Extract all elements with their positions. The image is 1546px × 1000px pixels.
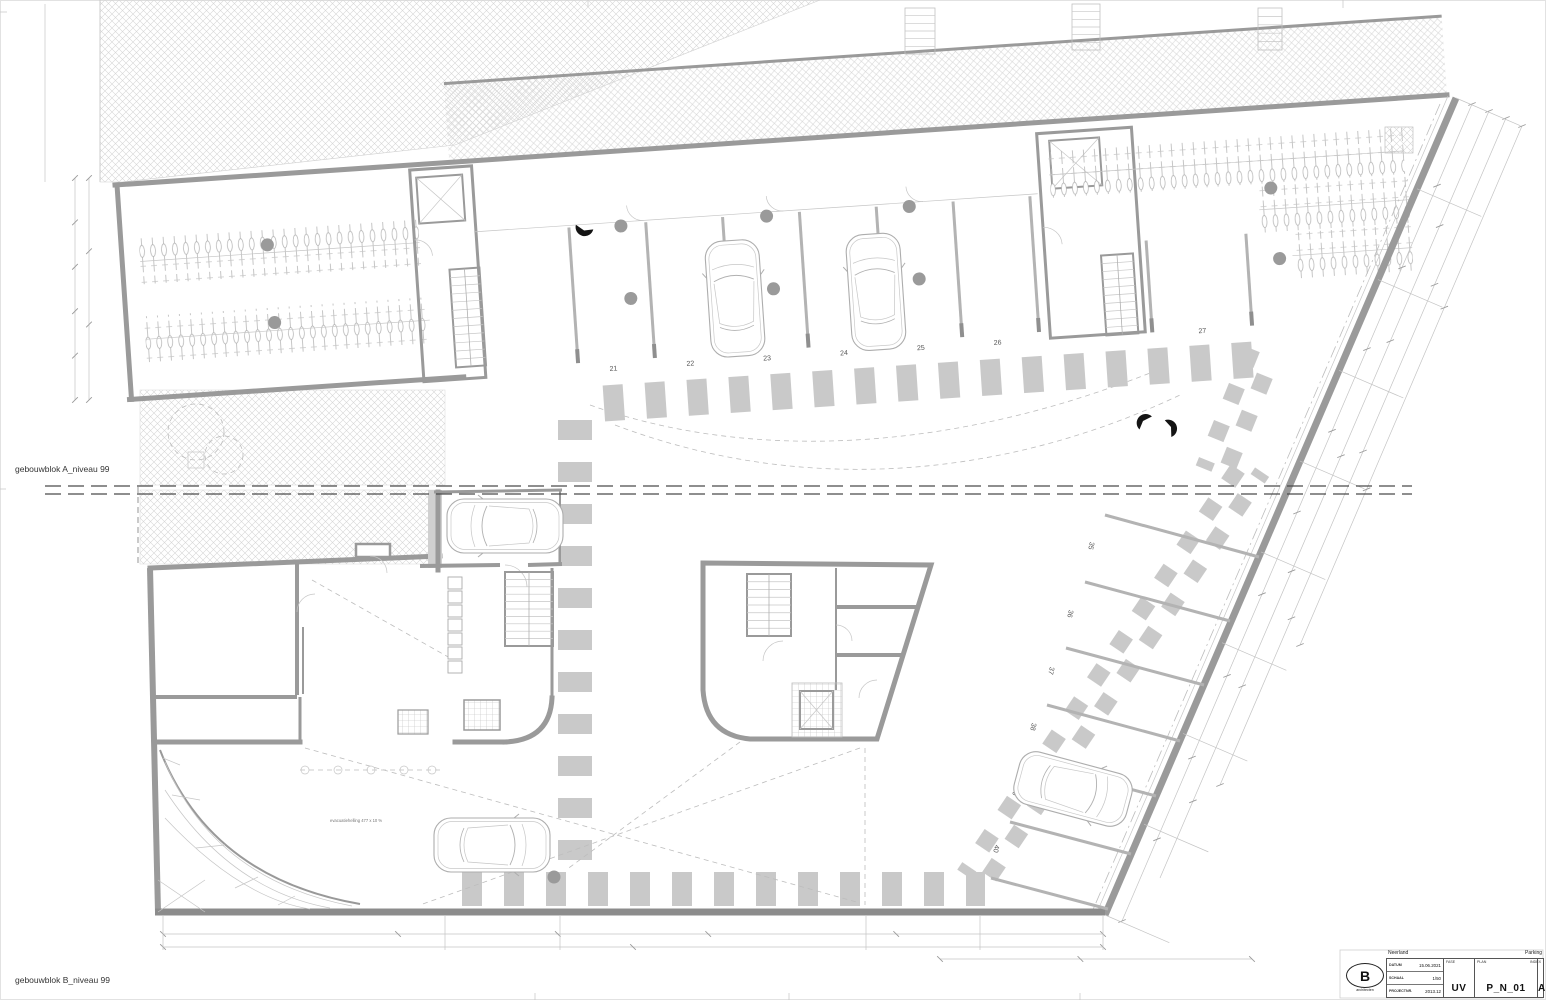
index-value: A xyxy=(1538,983,1543,994)
shaft-grid xyxy=(398,710,428,734)
parked-car xyxy=(447,495,563,557)
stair-icon xyxy=(505,572,553,646)
block-a-label: gebouwblok A_niveau 99 xyxy=(15,464,110,474)
stall-number: 26 xyxy=(994,340,1002,348)
stall-number: 27 xyxy=(1198,328,1206,336)
bike-storage-left xyxy=(139,219,432,362)
firm-logo-sub: architecten xyxy=(1344,988,1386,992)
walkway-top-band xyxy=(587,341,1260,422)
firm-logo: B xyxy=(1346,963,1384,988)
sheet-title: Parking xyxy=(1525,950,1542,956)
project-name: Neerland xyxy=(1388,950,1408,956)
datum-label: DATUM xyxy=(1389,963,1402,967)
stall-number: 35 xyxy=(1086,541,1095,550)
projectnr-label: PROJECTNR. xyxy=(1389,989,1412,993)
block-b-core xyxy=(703,563,931,739)
stall-number: 37 xyxy=(1046,666,1055,675)
walkway-vertical-band xyxy=(558,398,592,868)
stall-number: 23 xyxy=(763,355,771,363)
parked-car xyxy=(434,814,550,876)
pedestrian-walkways xyxy=(440,344,1281,906)
schaal-value: 1/50 xyxy=(1432,976,1441,981)
stall-number: 21 xyxy=(609,366,617,374)
section-marker-icon xyxy=(574,220,594,239)
fase-value: UV xyxy=(1444,983,1474,994)
stall-number: 36 xyxy=(1065,609,1074,618)
parked-car xyxy=(700,238,770,358)
stall-number: 25 xyxy=(917,345,925,353)
elevator-icon xyxy=(464,700,500,730)
stall-number: 38 xyxy=(1028,722,1037,731)
projectnr-value: 2013.12 xyxy=(1425,989,1441,994)
walkway-bottom-band xyxy=(440,872,985,906)
stair-icon xyxy=(747,574,791,636)
drawing-sheet: 21 22 23 24 25 26 27 xyxy=(0,0,1546,1000)
curved-ramp xyxy=(158,750,360,912)
block-a-left-wall xyxy=(117,185,132,400)
floor-plan-canvas: 21 22 23 24 25 26 27 xyxy=(0,0,1546,1000)
fase-label: FASE xyxy=(1446,960,1455,964)
section-marker-icon xyxy=(1159,417,1181,438)
parking-stall-27: 27 xyxy=(1144,234,1254,339)
title-block: Neerland Parking B architecten DATUM15.0… xyxy=(1340,950,1544,998)
stair-core-left xyxy=(410,166,487,382)
structural-column xyxy=(548,871,561,884)
block-b-label: gebouwblok B_niveau 99 xyxy=(15,975,110,985)
stall-number: 24 xyxy=(840,350,848,358)
plan-label: PLAN xyxy=(1477,960,1486,964)
stair-icon xyxy=(1101,253,1138,335)
section-marker-icon xyxy=(1136,413,1153,432)
stall-number: 22 xyxy=(686,360,694,368)
schaal-label: SCHAAL xyxy=(1389,976,1404,980)
ramp-note: evacuatiehelling 477 x 10 % xyxy=(330,818,382,823)
parking-stalls-b: 35 36 37 38 39 40 xyxy=(991,515,1259,909)
storage-lockers xyxy=(448,577,462,673)
elevator-icon xyxy=(416,175,465,224)
datum-value: 15.06.2021 xyxy=(1419,963,1441,968)
parked-car xyxy=(841,232,911,352)
block-b-left-building xyxy=(155,544,553,742)
index-label: INDEX xyxy=(1530,960,1541,964)
plan-value: P_N_01 xyxy=(1475,983,1537,994)
